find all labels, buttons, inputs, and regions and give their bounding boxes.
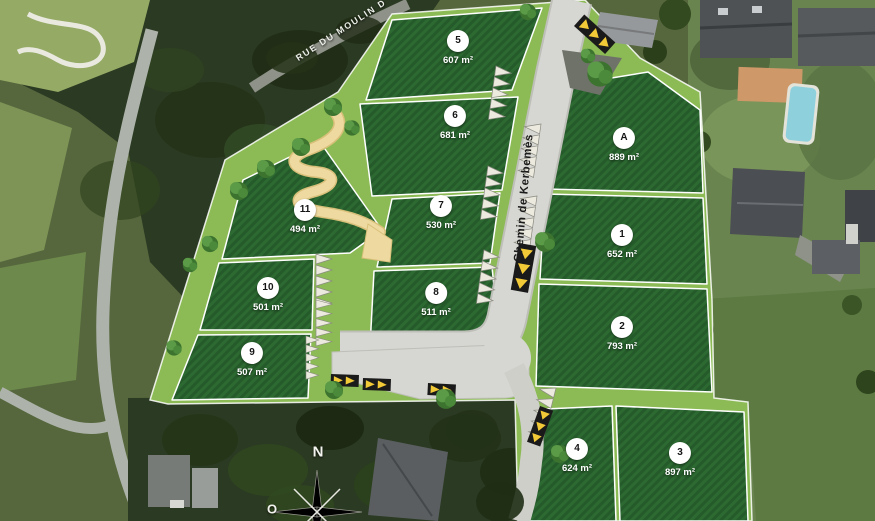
pool	[782, 82, 820, 145]
site-plan-stage: Chemin de Kerbemès RUE DU MOULIN D N O 5…	[0, 0, 875, 521]
aerial-site-plan-svg	[0, 0, 875, 521]
